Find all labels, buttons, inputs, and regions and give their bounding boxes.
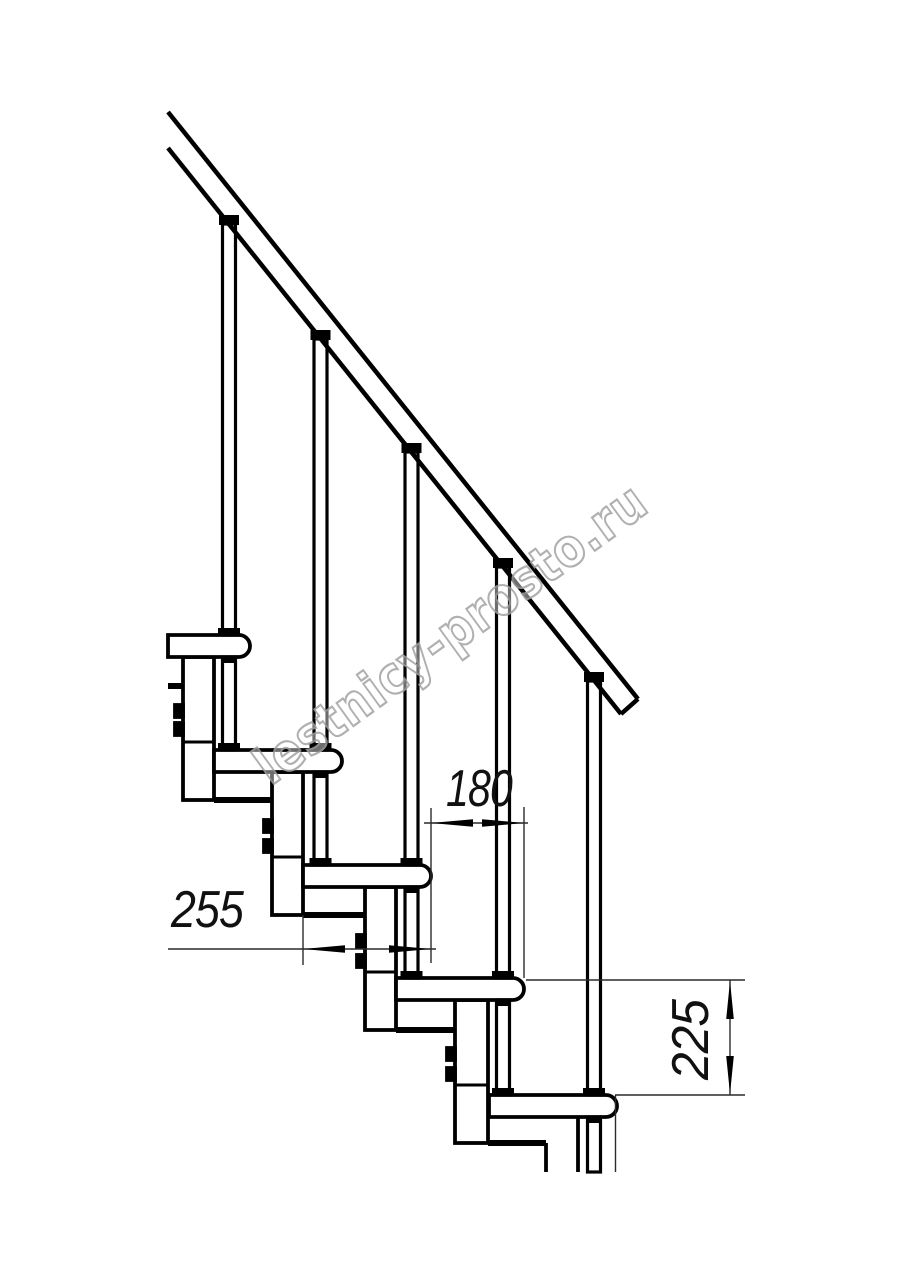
handrail-end-cap (621, 699, 638, 714)
baluster-nut (313, 772, 329, 778)
baluster-foot-plate (492, 1088, 514, 1095)
module-box (365, 887, 396, 1030)
baluster-3 (401, 443, 423, 978)
support-module-5 (488, 1117, 578, 1172)
arrowhead-down (726, 1056, 734, 1094)
baluster-rod (314, 772, 327, 865)
support-module-3 (303, 887, 396, 1030)
dimension-180: 180 (424, 760, 528, 827)
dimension-225: 225 (662, 980, 734, 1095)
baluster-foot-plate (310, 858, 332, 865)
arrowhead-up (726, 981, 734, 1019)
baluster-rod (588, 1117, 601, 1172)
support-module-4 (396, 1000, 488, 1143)
baluster-tread-plate (583, 1088, 605, 1095)
baluster-rod (405, 887, 418, 978)
module-box (183, 657, 214, 800)
baluster-nut (221, 657, 237, 663)
tread-3 (303, 865, 431, 887)
dimension-label-255: 255 (170, 881, 245, 939)
baluster-foot-plate (401, 971, 423, 978)
handrail (168, 112, 638, 714)
baluster-1 (218, 215, 240, 750)
baluster-nut (404, 887, 420, 893)
dimension-label-180: 180 (446, 760, 513, 818)
baluster-tread-plate (492, 971, 514, 978)
baluster-rod (588, 681, 601, 1095)
support-module-1 (168, 657, 214, 800)
tread-5 (489, 1095, 617, 1117)
baluster-rod (223, 657, 236, 750)
tread-1 (168, 635, 250, 657)
baluster-rod (497, 1000, 510, 1095)
module-bolt (357, 935, 365, 947)
arrowhead-left (303, 945, 345, 953)
baluster-rod (223, 224, 236, 635)
module-bolt (175, 705, 183, 717)
baluster-tread-plate (401, 858, 423, 865)
stair-drawing-page: 255 180 225 lestnicy-prosto.ru (0, 0, 914, 1280)
module-bolt (264, 820, 272, 832)
module-bolt (447, 1068, 455, 1080)
handrail-top-edge (168, 112, 638, 699)
stair-technical-drawing: 255 180 225 lestnicy-prosto.ru (0, 0, 914, 1280)
module-bolt (357, 955, 365, 967)
baluster-foot-plate (218, 743, 240, 750)
dimension-label-225: 225 (662, 998, 720, 1081)
module-bolt (175, 723, 183, 735)
module-bolt (264, 840, 272, 852)
baluster-nut (586, 1117, 602, 1123)
module-box (455, 1000, 488, 1143)
baluster-2 (310, 330, 332, 865)
arrowhead-left (431, 819, 473, 827)
baluster-tread-plate (218, 628, 240, 635)
baluster-nut (495, 1000, 511, 1006)
module-bolt (447, 1048, 455, 1060)
tread-4 (396, 978, 524, 1000)
